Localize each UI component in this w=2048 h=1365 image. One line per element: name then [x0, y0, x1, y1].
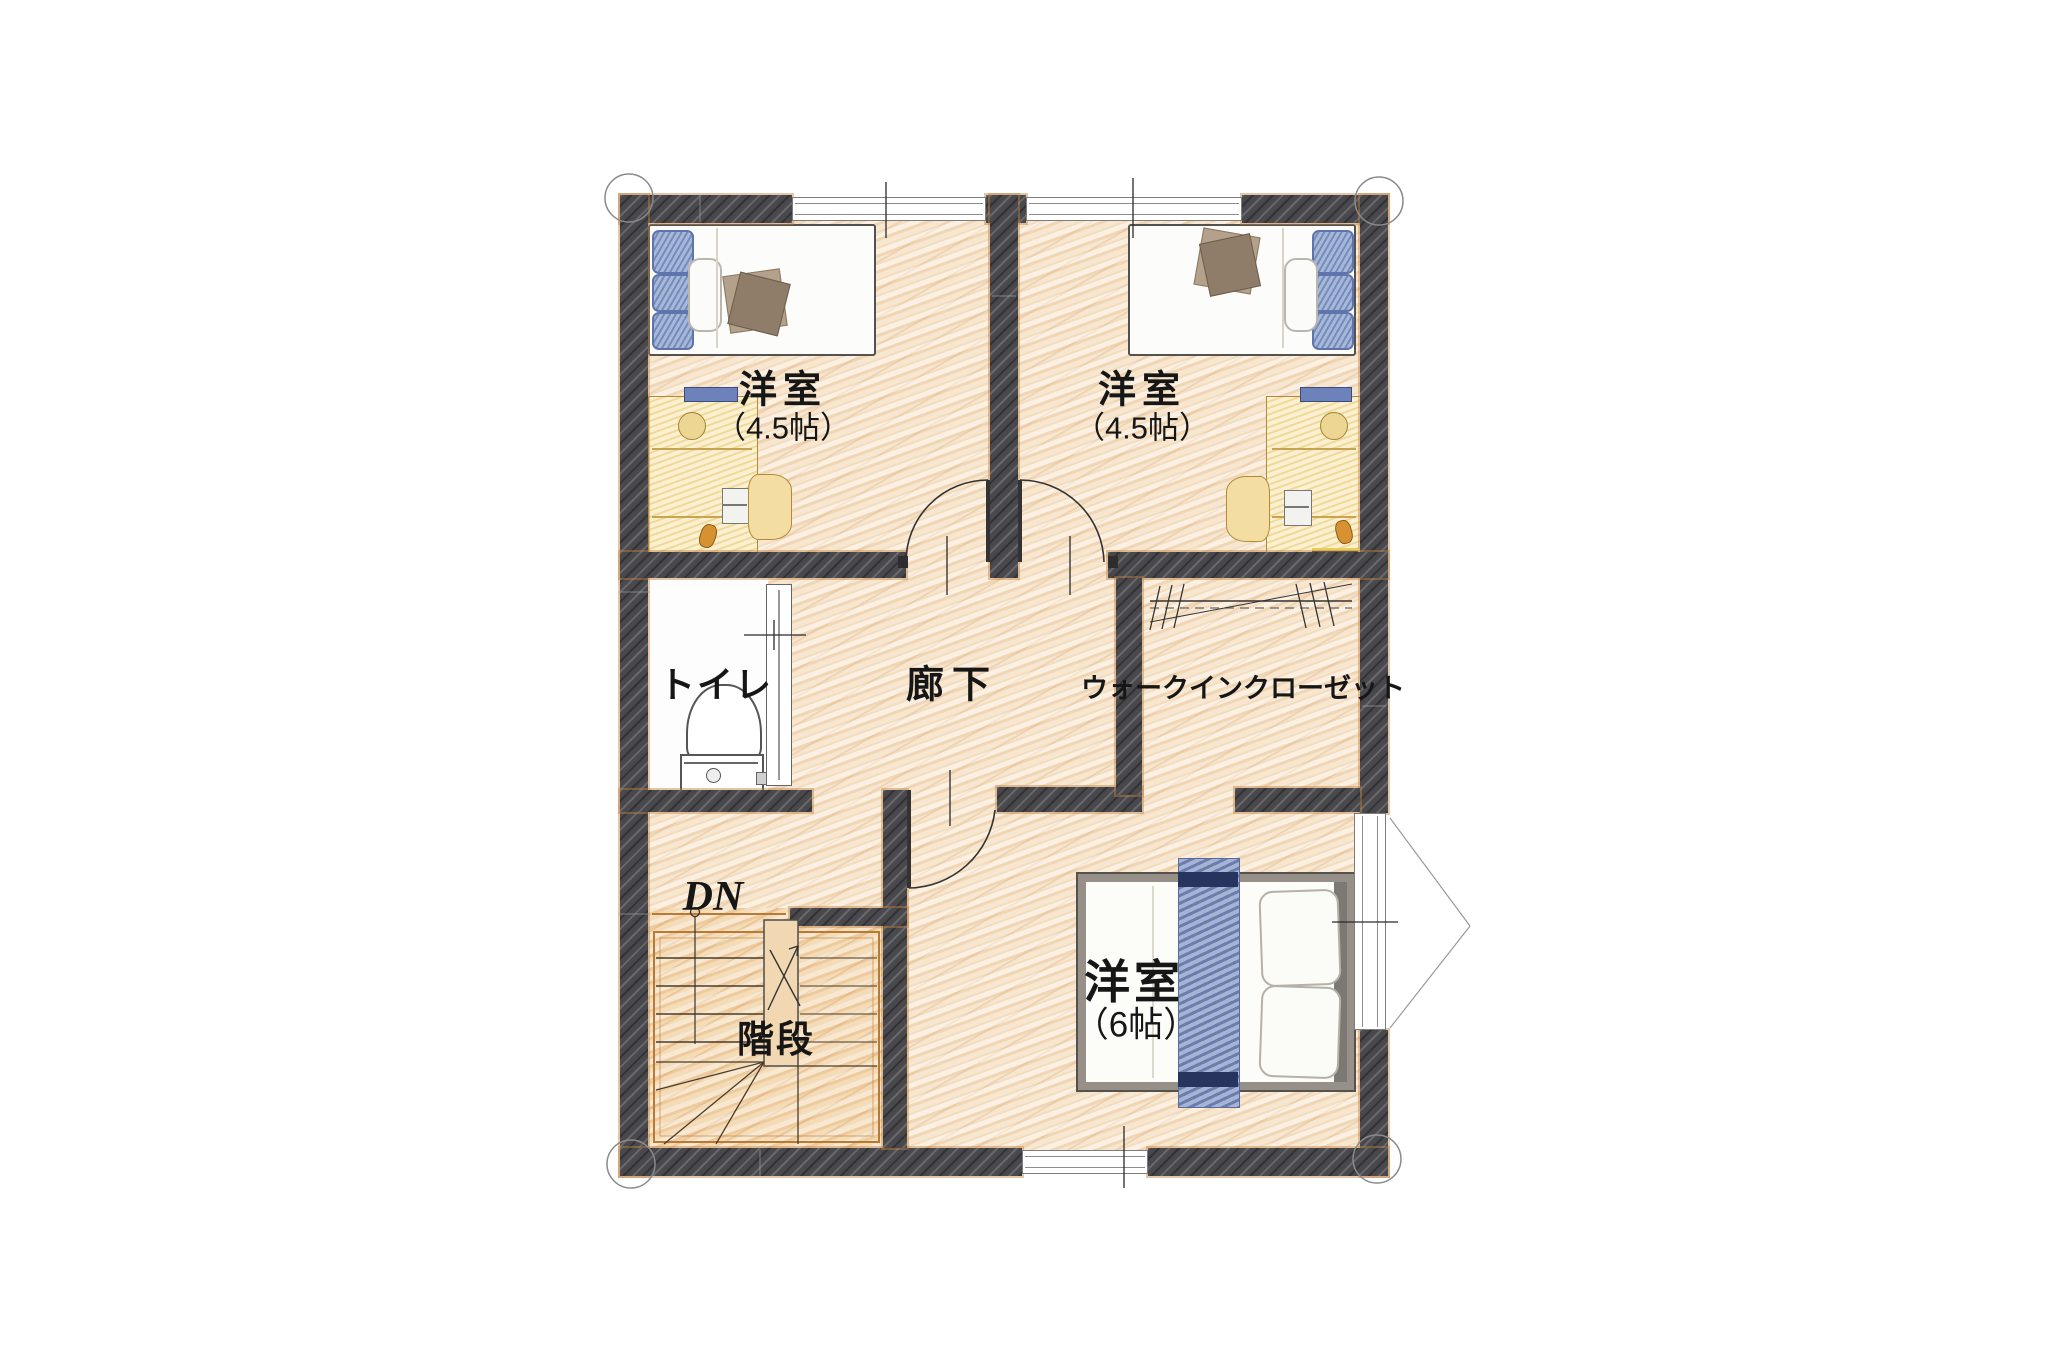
bed-right-bolster: [1284, 258, 1318, 332]
wall-right-upper: [1360, 195, 1388, 813]
desk-right-laptop-line: [1285, 506, 1309, 508]
wall-toilet-bottom: [620, 790, 812, 812]
desk-left-tray: [684, 387, 738, 402]
bedroom-right-size: （4.5帖）: [1074, 403, 1210, 448]
bed-right-pillow: [1312, 230, 1354, 274]
closet-label: ウォークインクローゼット: [1081, 667, 1405, 706]
stairs-dn-label: DN: [683, 873, 744, 921]
wall-center-vertical: [990, 195, 1018, 578]
desk-right-shelf-line: [1272, 448, 1356, 450]
bedroom-left-size: （4.5帖）: [715, 403, 851, 448]
wall-bottom-right: [1148, 1148, 1388, 1176]
toilet-flush-knob: [706, 768, 721, 783]
bed-left-duvet-seam: [716, 228, 718, 348]
stairs-label: 階段: [737, 1009, 815, 1063]
wall-bottom-left: [620, 1148, 1022, 1176]
desk-right-laptop: [1284, 490, 1312, 526]
bed-main-pillow: [1258, 889, 1341, 988]
blanket-icon: [1199, 233, 1261, 297]
bed-main-pillow: [1258, 985, 1341, 1080]
wall-left: [620, 195, 648, 1176]
toilet-door-line: [778, 590, 780, 780]
toilet-tank-line: [684, 762, 758, 764]
desk-right-tray: [1300, 387, 1352, 402]
bed-right-duvet-seam: [1282, 228, 1284, 348]
bed-main-runner-band: [1178, 1072, 1238, 1087]
bed-right-pillow: [1312, 312, 1354, 350]
wall-divider-left: [620, 552, 906, 578]
window-bottom: [1022, 1150, 1148, 1174]
bed-main-runner-band: [1178, 872, 1238, 887]
wall-stairs-top-stub: [790, 908, 907, 926]
bedroom-main-size: （6帖）: [1074, 997, 1198, 1048]
floor-plan-canvas: 洋室 （4.5帖） 洋室 （4.5帖） トイレ 廊下 ウォークインクローゼット …: [0, 0, 2048, 1365]
desk-left-lamp: [678, 412, 706, 440]
chair-left: [748, 474, 792, 540]
bed-right-pillow: [1312, 274, 1354, 312]
wall-stairs-right: [883, 790, 907, 1148]
desk-left-laptop: [722, 488, 750, 524]
door-jamb: [898, 556, 908, 568]
window-right: [1354, 813, 1386, 1030]
balcony-lines: [1390, 818, 1470, 1028]
desk-right-lamp: [1320, 412, 1348, 440]
window-top-left: [792, 197, 986, 221]
wall-closet-bottom: [1235, 788, 1360, 812]
chair-right: [1226, 476, 1270, 542]
hallway-label: 廊下: [906, 654, 998, 709]
bed-main-runner: [1178, 858, 1240, 1108]
desk-left-shelf-line: [652, 448, 752, 450]
wall-divider-right: [1108, 552, 1388, 578]
door-jamb: [1108, 556, 1118, 568]
window-top-right: [1026, 197, 1242, 221]
desk-left-laptop-line: [723, 504, 747, 506]
toilet-label: トイレ: [659, 656, 773, 708]
